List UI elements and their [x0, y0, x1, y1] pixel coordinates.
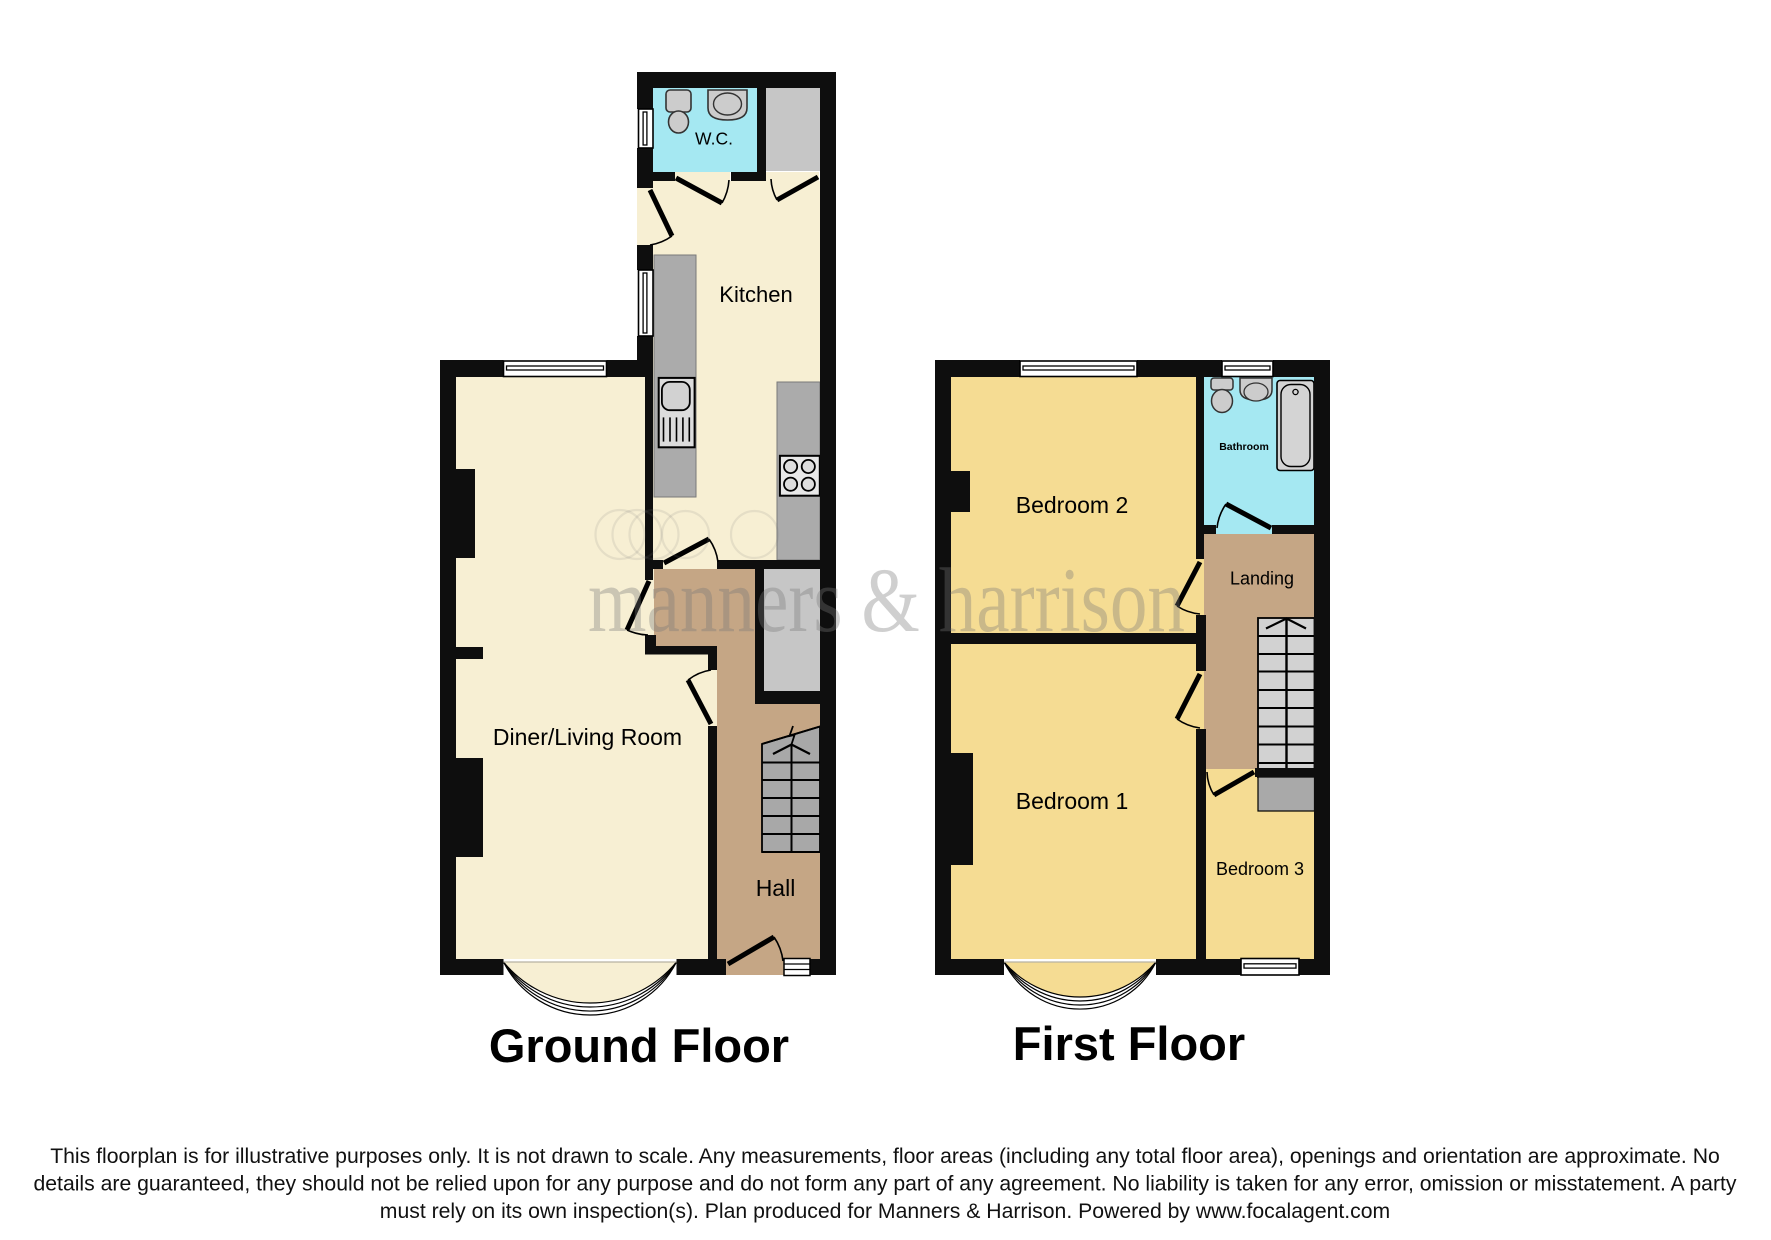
svg-text:Diner/Living Room: Diner/Living Room [493, 724, 682, 750]
svg-text:Bedroom 3: Bedroom 3 [1216, 859, 1304, 879]
svg-text:This floorplan is for illustra: This floorplan is for illustrative purpo… [50, 1145, 1720, 1168]
svg-text:details are guaranteed, they s: details are guaranteed, they should not … [33, 1173, 1736, 1196]
svg-text:must rely on its own inspectio: must rely on its own inspection(s). Plan… [380, 1200, 1390, 1223]
svg-text:First Floor: First Floor [1013, 1017, 1245, 1070]
svg-text:Hall: Hall [756, 875, 796, 901]
svg-text:Bedroom 1: Bedroom 1 [1016, 788, 1129, 814]
svg-text:Bedroom 2: Bedroom 2 [1016, 492, 1129, 518]
svg-text:Bathroom: Bathroom [1219, 441, 1269, 453]
svg-text:Landing: Landing [1230, 569, 1294, 589]
svg-text:W.C.: W.C. [695, 129, 733, 149]
svg-text:Ground Floor: Ground Floor [489, 1019, 789, 1072]
svg-text:Kitchen: Kitchen [719, 282, 792, 307]
svg-text:manners & harrison: manners & harrison [588, 549, 1185, 651]
